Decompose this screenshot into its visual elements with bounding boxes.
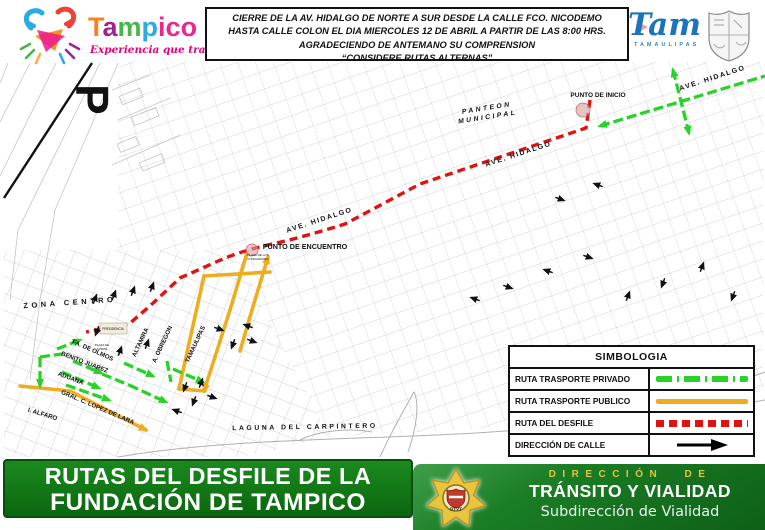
badge-text: DTVT bbox=[450, 507, 462, 512]
tam-wordmark: Tam bbox=[628, 10, 698, 41]
tam-subtitle: TAMAULIPAS bbox=[634, 42, 698, 48]
tamaulipas-logo: Tam TAMAULIPAS bbox=[628, 10, 698, 60]
title-banner: RUTAS DEL DESFILE DE LA FUNDACIÓN DE TAM… bbox=[3, 459, 413, 518]
title-line-1: RUTAS DEL DESFILE DE LA bbox=[5, 464, 411, 490]
legend: SIMBOLOGIA RUTA TRASPORTE PRIVADO RUTA T… bbox=[508, 345, 755, 457]
crab-icon bbox=[14, 6, 86, 66]
legend-row: RUTA DEL DESFILE bbox=[510, 413, 753, 435]
tamaulipas-crest-icon bbox=[706, 8, 752, 64]
legend-label: DIRECCIÓN DE CALLE bbox=[510, 435, 650, 455]
transito-badge-icon: DTVT bbox=[423, 465, 489, 530]
dept-line-1: DIRECCIÓN DE bbox=[499, 469, 761, 480]
legend-label: RUTA TRASPORTE PUBLICO bbox=[510, 391, 650, 411]
legend-row: DIRECCIÓN DE CALLE bbox=[510, 435, 753, 455]
label-punto-inicio: PUNTO DE INICIO bbox=[570, 92, 625, 99]
yellow-solid-line-icon bbox=[650, 391, 753, 411]
punto-inicio-marker bbox=[576, 103, 590, 117]
dept-line-2: TRÁNSITO Y VIALIDAD bbox=[499, 481, 761, 502]
closure-notice: CIERRE DE LA AV. HIDALGO DE NORTE A SUR … bbox=[205, 7, 629, 61]
tampico-wordmark: Tampico bbox=[88, 14, 197, 41]
tampico-letter: m bbox=[118, 12, 142, 42]
legend-label: RUTA DEL DESFILE bbox=[510, 413, 650, 433]
tampico-letter: T bbox=[88, 12, 103, 42]
label-plaza-armas-2: ARMAS bbox=[97, 347, 108, 351]
notice-line: CIERRE DE LA AV. HIDALGO DE NORTE A SUR … bbox=[207, 12, 627, 25]
tampico-letters: ico bbox=[158, 12, 197, 42]
tampico-letter: p bbox=[142, 12, 159, 42]
notice-line: AGRADECIENDO DE ANTEMANO SU COMPRENSION bbox=[207, 39, 627, 52]
legend-label: RUTA TRASPORTE PRIVADO bbox=[510, 369, 650, 389]
legend-title: SIMBOLOGIA bbox=[510, 347, 753, 369]
department-title: DIRECCIÓN DE TRÁNSITO Y VIALIDAD Subdire… bbox=[499, 469, 761, 520]
legend-row: RUTA TRASPORTE PRIVADO bbox=[510, 369, 753, 391]
black-arrow-icon bbox=[650, 435, 753, 455]
label-presidencia: PRESIDENCIA bbox=[102, 327, 124, 331]
route-map-poster: P bbox=[0, 0, 765, 530]
notice-line: “CONSIDERE RUTAS ALTERNAS” bbox=[207, 52, 627, 65]
title-line-2: FUNDACIÓN DE TAMPICO bbox=[5, 490, 411, 516]
tampico-logo: Tampico Experiencia que transforma bbox=[10, 6, 205, 64]
tampico-letter: a bbox=[103, 12, 118, 42]
label-punto-encuentro: PUNTO DE ENCUENTRO bbox=[263, 242, 348, 251]
green-dashed-line-icon bbox=[650, 369, 753, 389]
department-banner: DTVT DIRECCIÓN DE TRÁNSITO Y VIALIDAD Su… bbox=[413, 464, 765, 530]
legend-row: RUTA TRASPORTE PUBLICO bbox=[510, 391, 753, 413]
red-dashed-line-icon bbox=[650, 413, 753, 433]
p-marker: P bbox=[66, 84, 118, 115]
dept-line-3: Subdirección de Vialidad bbox=[499, 504, 761, 520]
label-plaza-encuentro-2: FUNDADORES bbox=[247, 257, 268, 261]
notice-line: HASTA CALLE COLON EL DIA MIERCOLES 12 DE… bbox=[207, 25, 627, 38]
